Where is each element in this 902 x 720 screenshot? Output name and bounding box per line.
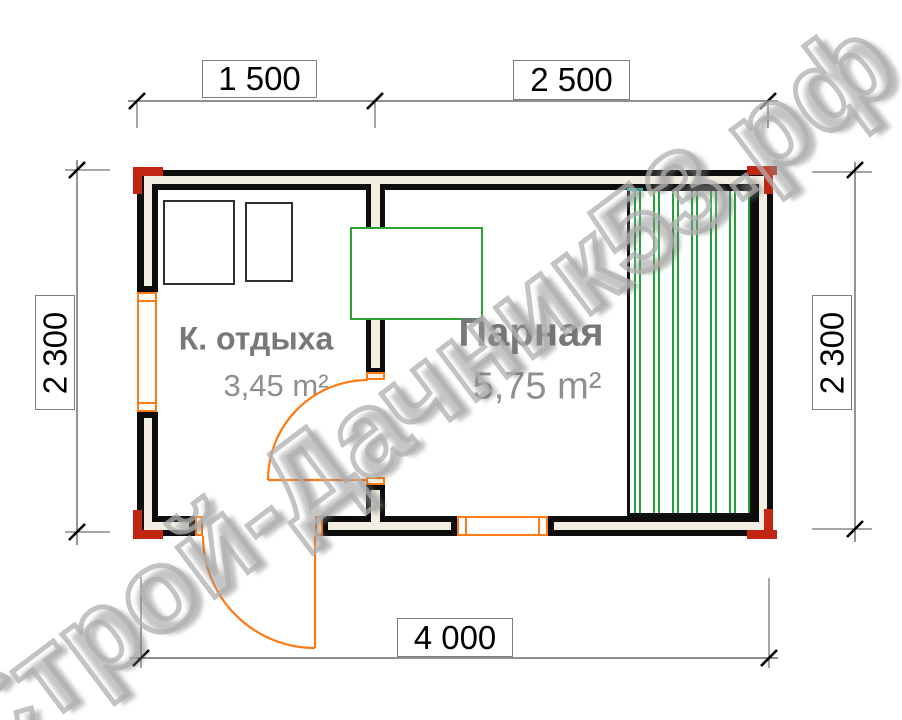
dimension-bottom-total: 4 000: [397, 618, 513, 657]
corner-mark-bottom-left-v: [133, 510, 142, 539]
sauna-bench: [627, 188, 753, 516]
dimension-top-right: 2 500: [513, 60, 630, 100]
entrance-door-jamb-right: [315, 516, 323, 536]
furniture-table: [163, 200, 235, 285]
window-bottom-cap-right: [538, 516, 548, 536]
entrance-door-jamb-left: [195, 516, 203, 536]
interior-door-jamb-top: [366, 372, 385, 380]
window-left-wall: [137, 292, 157, 412]
dimension-side-right: 2 300: [812, 295, 852, 410]
corner-mark-bottom-right-v: [764, 509, 773, 539]
dimension-top-left: 1 500: [202, 60, 317, 98]
wall-core-left-upper: [144, 176, 152, 286]
door-symbols: [203, 380, 368, 648]
wall-core-partition-stub: [371, 490, 380, 528]
dimension-side-left: 2 300: [35, 295, 75, 410]
wall-core-bottom-left: [144, 522, 189, 530]
wall-core-bottom-right: [554, 522, 766, 530]
room-area-rest-room: 3,45 m²: [223, 368, 328, 404]
wall-core-right: [759, 176, 767, 530]
room-label-steam-room: Парная: [458, 311, 603, 356]
floor-plan-canvas: К. отдыха 3,45 m² Парная 5,75 m²: [0, 0, 902, 720]
wall-core-bottom-middle: [328, 522, 451, 530]
wall-core-left-lower: [144, 418, 152, 530]
window-left-cap-bottom: [137, 402, 157, 412]
wall-core-top: [144, 176, 766, 184]
window-bottom-cap-left: [457, 516, 467, 536]
corner-mark-top-left-v: [133, 167, 142, 194]
furniture-chair: [245, 202, 293, 282]
stove: [350, 227, 483, 320]
corner-mark-top-right-v: [764, 166, 773, 194]
room-area-steam-room: 5,75 m²: [473, 366, 602, 409]
window-bottom-wall: [457, 516, 548, 536]
dimension-side-left-text: 2 300: [36, 311, 74, 394]
dimension-side-right-text: 2 300: [813, 311, 851, 394]
window-left-cap-top: [137, 292, 157, 302]
room-label-rest-room: К. отдыха: [179, 321, 334, 358]
entrance-door-swing-arc: [203, 536, 315, 648]
bench-corner-mark: [627, 188, 643, 191]
interior-door-jamb-bottom: [366, 477, 385, 485]
